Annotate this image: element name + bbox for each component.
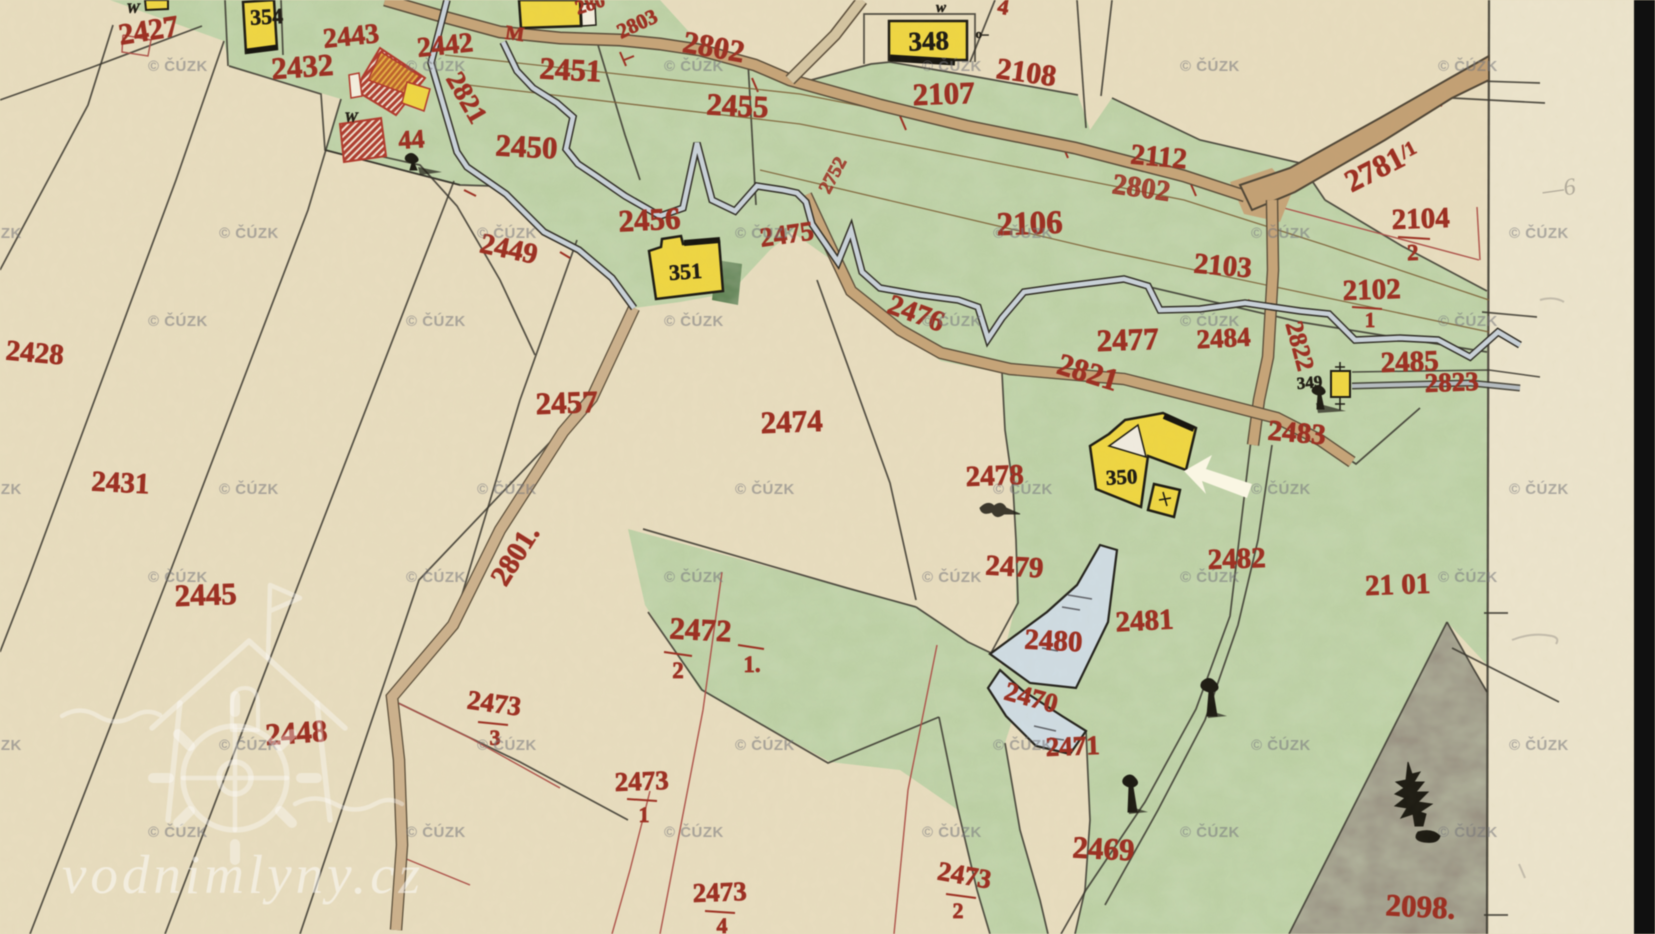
svg-text:© ČÚZK: © ČÚZK [1509,736,1569,754]
svg-text:© ČÚZK: © ČÚZK [0,736,22,754]
svg-text:© ČÚZK: © ČÚZK [1251,480,1311,498]
svg-text:© ČÚZK: © ČÚZK [922,312,982,330]
svg-text:© ČÚZK: © ČÚZK [664,568,724,586]
svg-text:© ČÚZK: © ČÚZK [1251,736,1311,754]
svg-text:© ČÚZK: © ČÚZK [1438,57,1498,75]
svg-text:© ČÚZK: © ČÚZK [1251,224,1311,242]
svg-text:© ČÚZK: © ČÚZK [922,568,982,586]
svg-text:© ČÚZK: © ČÚZK [406,823,466,841]
svg-text:© ČÚZK: © ČÚZK [1438,823,1498,841]
svg-text:© ČÚZK: © ČÚZK [1438,312,1498,330]
svg-text:© ČÚZK: © ČÚZK [664,57,724,75]
svg-text:© ČÚZK: © ČÚZK [1180,823,1240,841]
svg-text:© ČÚZK: © ČÚZK [993,736,1053,754]
svg-text:© ČÚZK: © ČÚZK [735,736,795,754]
svg-text:© ČÚZK: © ČÚZK [148,568,208,586]
svg-text:© ČÚZK: © ČÚZK [406,57,466,75]
svg-text:© ČÚZK: © ČÚZK [148,312,208,330]
svg-text:© ČÚZK: © ČÚZK [922,823,982,841]
svg-text:vodnimlyny.cz: vodnimlyny.cz [62,844,424,905]
svg-text:© ČÚZK: © ČÚZK [1509,480,1569,498]
svg-text:© ČÚZK: © ČÚZK [1180,312,1240,330]
svg-text:© ČÚZK: © ČÚZK [1438,568,1498,586]
svg-text:© ČÚZK: © ČÚZK [406,568,466,586]
svg-text:© ČÚZK: © ČÚZK [735,224,795,242]
svg-text:© ČÚZK: © ČÚZK [735,480,795,498]
svg-text:© ČÚZK: © ČÚZK [664,312,724,330]
svg-text:© ČÚZK: © ČÚZK [477,736,537,754]
svg-text:© ČÚZK: © ČÚZK [922,57,982,75]
svg-text:© ČÚZK: © ČÚZK [1509,224,1569,242]
svg-text:© ČÚZK: © ČÚZK [219,480,279,498]
svg-text:© ČÚZK: © ČÚZK [664,823,724,841]
svg-text:© ČÚZK: © ČÚZK [0,224,22,242]
svg-text:© ČÚZK: © ČÚZK [477,224,537,242]
svg-text:© ČÚZK: © ČÚZK [993,480,1053,498]
svg-text:© ČÚZK: © ČÚZK [148,57,208,75]
svg-text:© ČÚZK: © ČÚZK [406,312,466,330]
svg-text:© ČÚZK: © ČÚZK [1180,57,1240,75]
svg-text:© ČÚZK: © ČÚZK [477,480,537,498]
svg-text:© ČÚZK: © ČÚZK [219,224,279,242]
svg-text:© ČÚZK: © ČÚZK [993,224,1053,242]
svg-text:© ČÚZK: © ČÚZK [1180,568,1240,586]
svg-text:© ČÚZK: © ČÚZK [0,480,22,498]
